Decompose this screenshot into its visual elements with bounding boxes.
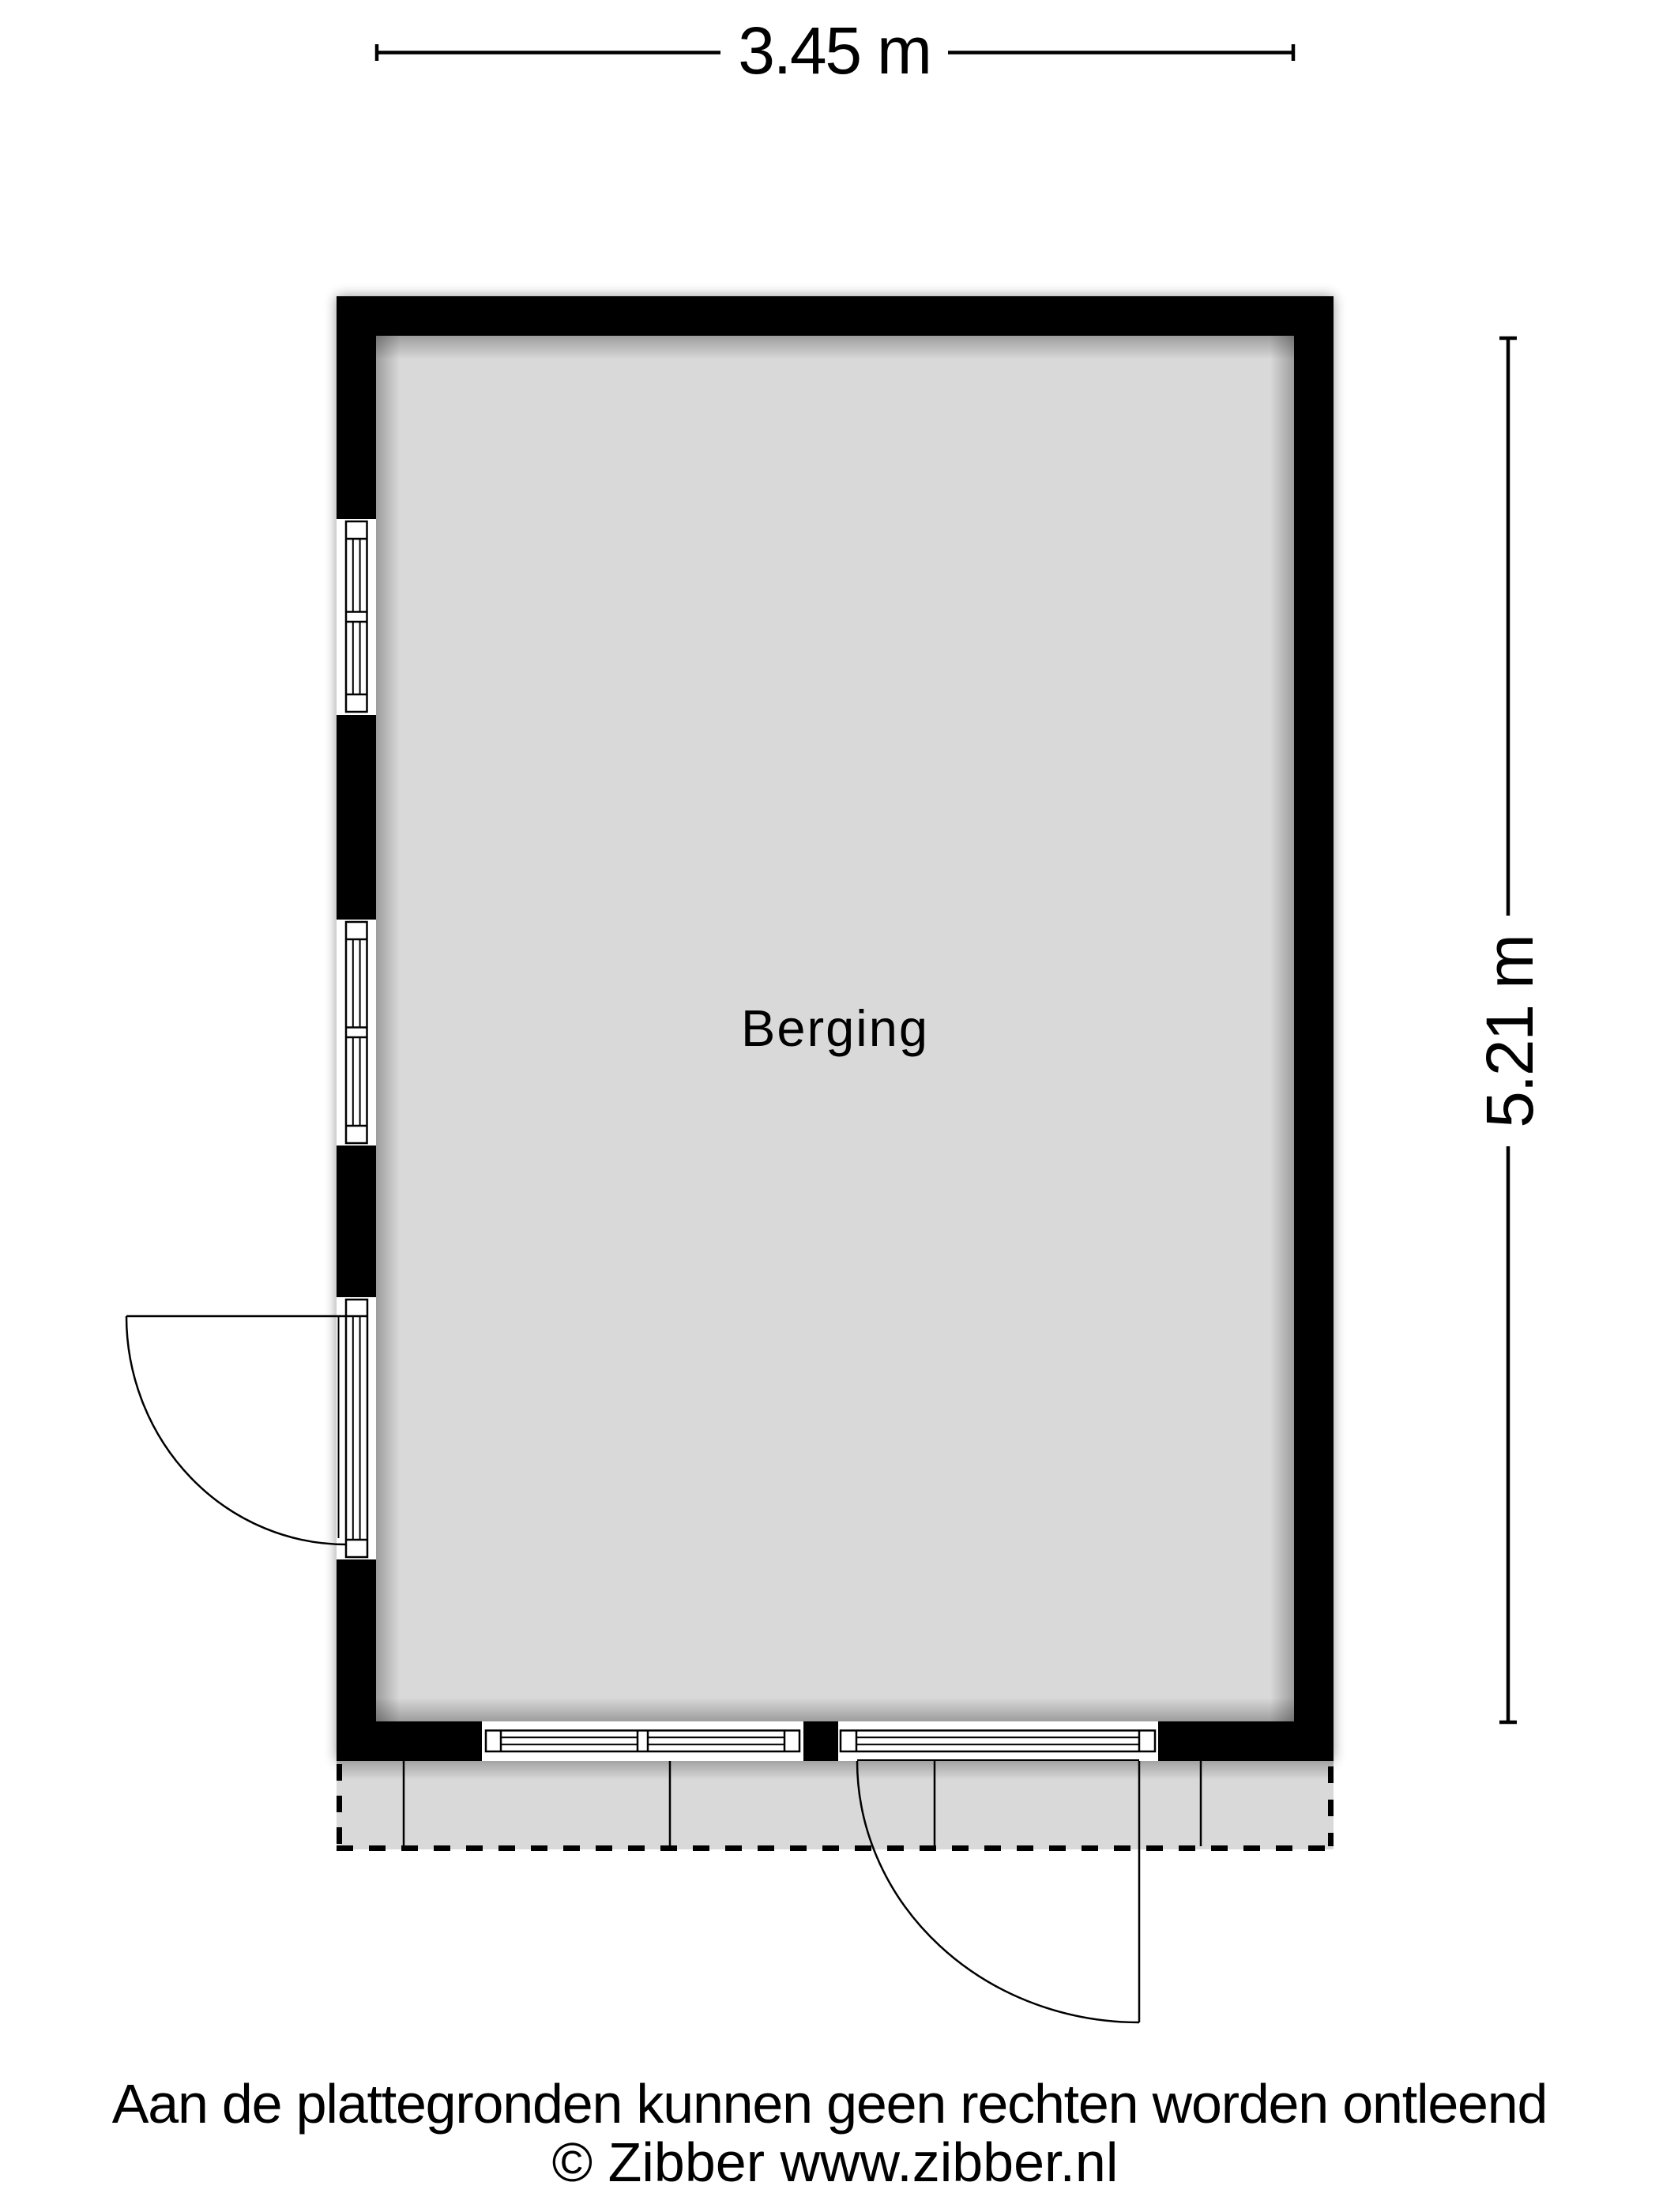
svg-text:Berging: Berging xyxy=(741,999,929,1057)
svg-text:5.21 m: 5.21 m xyxy=(1473,935,1547,1128)
svg-text:Aan de plattegronden kunnen ge: Aan de plattegronden kunnen geen rechten… xyxy=(112,2073,1548,2135)
svg-text:3.45 m: 3.45 m xyxy=(738,13,931,88)
svg-text:© Zibber www.zibber.nl: © Zibber www.zibber.nl xyxy=(552,2131,1119,2193)
